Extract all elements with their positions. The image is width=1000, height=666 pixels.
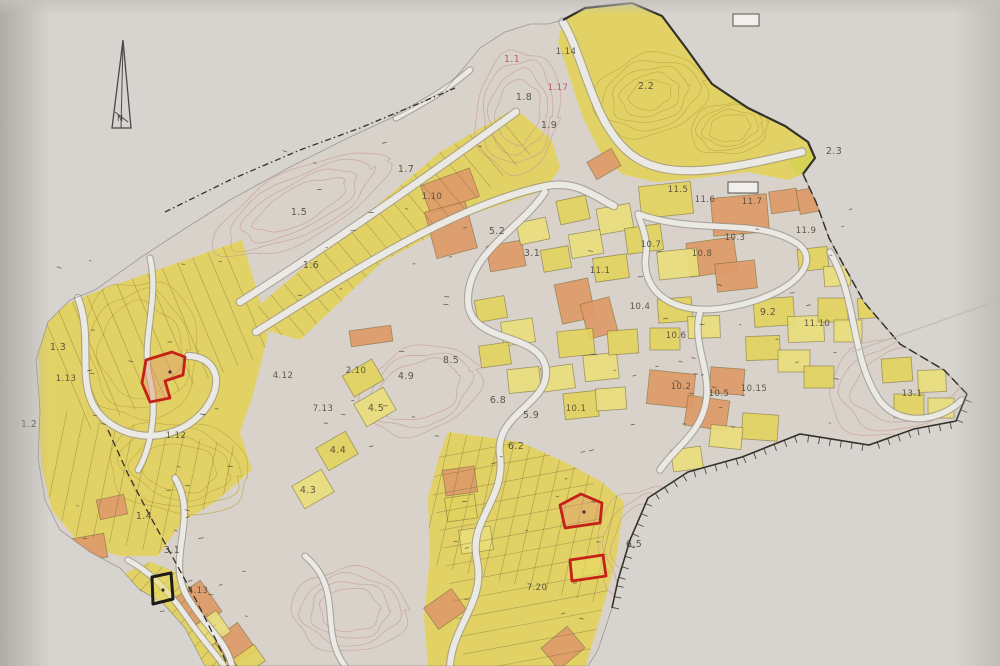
section-label: 10.4 <box>630 302 651 312</box>
section-label: 1.6 <box>303 260 319 271</box>
parcel <box>607 329 639 355</box>
section-label: 2.10 <box>346 366 367 376</box>
section-label: 2.2 <box>638 81 654 92</box>
section-label: 11.10 <box>804 319 830 329</box>
section-label: 5.2 <box>489 226 505 237</box>
parcel <box>715 260 758 292</box>
section-label: 10.8 <box>692 249 713 259</box>
section-label: 4.12 <box>273 371 294 381</box>
section-label: 7.20 <box>527 583 548 593</box>
section-label: 3.1 <box>164 545 180 556</box>
section-label: 1.10 <box>422 192 443 202</box>
parcel <box>709 424 743 449</box>
section-label: 9.2 <box>760 307 776 318</box>
parcel <box>804 366 834 388</box>
plot-marker-dot <box>582 510 585 513</box>
section-label: 4.3 <box>300 485 316 496</box>
parcel <box>746 335 781 360</box>
parcel <box>741 413 779 441</box>
parcel <box>595 387 626 411</box>
section-label: 4.4 <box>330 445 346 456</box>
section-label: 10.6 <box>666 331 687 341</box>
section-label: 1.3 <box>50 342 66 353</box>
building-symbol-box <box>728 182 758 193</box>
section-label: 5.9 <box>523 410 539 421</box>
section-label: 11.9 <box>796 226 817 236</box>
plot-marker-dot <box>161 588 164 591</box>
section-label: 11.1 <box>590 266 611 276</box>
section-label: 10.15 <box>741 384 767 394</box>
plot-marker-dot <box>168 370 171 373</box>
section-label: 10.2 <box>671 382 692 392</box>
section-label: 13.1 <box>902 389 923 399</box>
scanned-map-page: 2.22.31.141.11.171.81.91.71.101.51.65.23… <box>0 0 1000 666</box>
section-label: 11.5 <box>668 185 689 195</box>
section-label: 1.7 <box>398 164 414 175</box>
parcel <box>479 342 512 368</box>
map-artwork: 2.22.31.141.11.171.81.91.71.101.51.65.23… <box>0 0 1000 666</box>
section-label: 11.6 <box>695 195 716 205</box>
parcel <box>557 328 596 358</box>
parcel <box>568 229 604 258</box>
section-label: 1.9 <box>541 120 557 131</box>
parcel <box>881 357 913 383</box>
highlight-parcel-red-3 <box>570 555 606 581</box>
section-label: 1.12 <box>166 431 187 441</box>
building-symbol-box <box>733 14 759 26</box>
section-label: 1.13 <box>56 374 77 384</box>
section-label: 10.3 <box>725 233 746 243</box>
section-label: 1.1 <box>504 54 520 65</box>
section-label: 6.8 <box>490 395 506 406</box>
section-label: 4.9 <box>398 371 414 382</box>
section-label: 6.5 <box>626 539 642 550</box>
parcel <box>769 188 800 214</box>
parcel <box>583 352 620 381</box>
section-label: 4.5 <box>368 403 384 414</box>
section-label: 7.13 <box>313 404 334 414</box>
parcel <box>688 315 721 338</box>
section-label: 2.3 <box>826 146 842 157</box>
section-label: 10.7 <box>641 240 662 250</box>
north-arrow-label: N <box>117 114 123 123</box>
section-label: 1.5 <box>291 207 307 218</box>
section-label: 4.13 <box>188 586 209 596</box>
section-label: 1.14 <box>556 47 577 57</box>
section-label: 11.7 <box>742 197 763 207</box>
section-label: 8.5 <box>443 355 459 366</box>
parcel <box>474 296 507 323</box>
section-label: 10.1 <box>566 404 587 414</box>
section-label: 10.5 <box>709 389 730 399</box>
map-image: 2.22.31.141.11.171.81.91.71.101.51.65.23… <box>0 0 1000 666</box>
section-label: 3.1 <box>524 248 540 259</box>
section-label: 6.2 <box>508 441 524 452</box>
section-label: 1.4 <box>136 511 152 522</box>
section-label: 1.8 <box>516 92 532 103</box>
parcel <box>540 246 571 273</box>
section-label: 1.17 <box>548 83 569 93</box>
